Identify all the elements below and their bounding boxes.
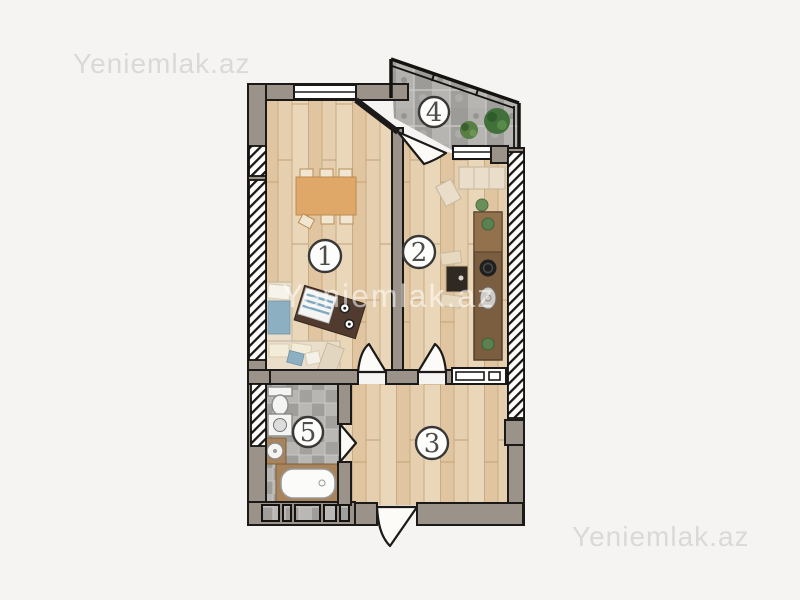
door-entrance: [377, 507, 417, 546]
wall-bottom-doorjamb: [355, 503, 377, 525]
watermark-center: Yeniemlak.az: [282, 278, 495, 315]
room-number: 5: [300, 418, 317, 448]
duct: [262, 505, 279, 521]
room-badge-3: 3: [416, 427, 448, 459]
duct: [283, 505, 291, 521]
dining-table: [296, 177, 356, 215]
plant-detail: [461, 123, 469, 131]
toilet-icon: [272, 395, 288, 415]
bathtub-icon: [281, 469, 335, 498]
dining-set: [296, 169, 356, 229]
room-badge-1: 1: [309, 240, 341, 272]
room-badge-2: 2: [403, 236, 435, 268]
room-number: 4: [426, 98, 443, 128]
stove-icon: [480, 260, 497, 277]
wall-hall-top-mid: [386, 370, 418, 384]
pier-hatched: [249, 180, 266, 360]
room-badge-4: 4: [419, 97, 449, 128]
floor-plan-page: Yeniemlak.az: [0, 0, 800, 600]
room-number: 3: [424, 429, 441, 459]
service-ducts: [262, 505, 349, 521]
duct: [324, 505, 336, 521]
pier-hatched: [251, 384, 266, 446]
pier-hatched: [249, 146, 266, 176]
wall-hall-top-left: [266, 370, 358, 384]
wall-right-pier: [505, 420, 524, 445]
plant-icon: [476, 199, 488, 211]
watermark-bottom-right: Yeniemlak.az: [572, 521, 750, 553]
kitchen-bench: [459, 167, 505, 189]
dining-chair: [321, 215, 334, 224]
kitchen-chair: [440, 251, 461, 266]
duct: [340, 505, 349, 521]
duct: [295, 505, 320, 521]
wall-bottom-right: [417, 503, 523, 525]
wall-balcony-stub: [491, 146, 508, 163]
wall-bath-right-lower: [338, 462, 351, 505]
pier-hatched: [508, 152, 524, 418]
sink-drain: [273, 449, 277, 453]
room-number: 2: [411, 238, 428, 268]
dining-chair: [340, 215, 353, 224]
sofa-pillow: [305, 351, 321, 366]
wall-bath-top: [248, 370, 270, 384]
sofa-cushion: [269, 344, 289, 357]
wall-living-kitchen: [392, 128, 403, 370]
wall-bath-right-upper: [338, 384, 351, 424]
room-badge-5: 5: [293, 417, 323, 448]
window-pane: [489, 372, 500, 380]
plant-detail: [487, 112, 497, 122]
plant-icon: [482, 338, 494, 350]
plant-detail: [497, 120, 507, 130]
plant-detail: [470, 130, 477, 137]
plant-icon: [484, 108, 510, 134]
plant-icon: [482, 218, 494, 230]
room-number: 1: [317, 242, 334, 272]
washer-door: [274, 419, 287, 432]
window-pane: [456, 372, 484, 380]
